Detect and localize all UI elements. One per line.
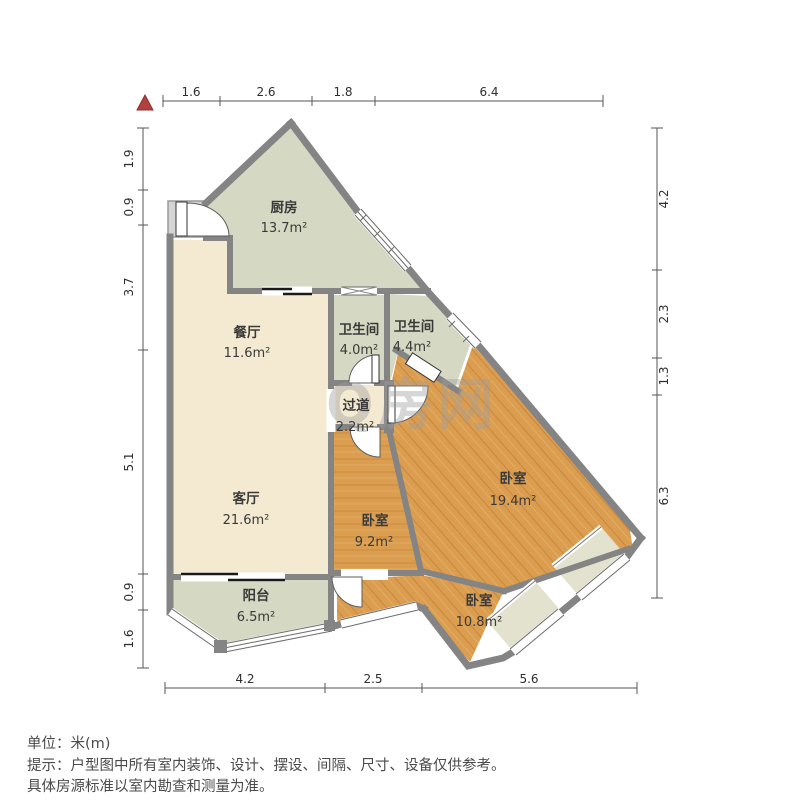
footer: 单位：米(m) 提示：户型图中所有室内装饰、设计、摆设、间隔、尺寸、设备仅供参考… [27,735,506,795]
dim-label-top-0: 1.6 [181,85,200,99]
dim-label-left-4: 0.9 [122,582,136,601]
dim-left [137,128,149,668]
dim-label-bottom-1: 2.5 [363,672,382,686]
room-hallway-label: 过道 [343,397,370,414]
room-bath2-label: 卫生间 [394,318,435,335]
room-kitchen-area: 13.7m² [261,221,308,236]
room-kitchen-floor [206,123,426,292]
dim-label-top-1: 2.6 [256,85,275,99]
room-balcony-area: 6.5m² [237,610,276,625]
room-hallway-area: 2.2m² [336,420,375,435]
floorplan-canvas: Q房网 厨房 13.7m² 餐厅 11.6m² 卫生间 4.0m² 卫生间 4.… [0,0,800,800]
room-bedroom-small-label: 卧室 [466,592,493,609]
room-living-area: 21.6m² [223,513,270,528]
balcony-sliding-door [181,574,285,580]
footer-unit-label: 单位：米(m) [27,735,110,752]
room-bath1-label: 卫生间 [339,321,380,338]
room-balcony-label: 阳台 [243,587,270,604]
north-indicator-icon [137,95,153,110]
room-bath2-area: 4.4m² [393,340,432,355]
room-bedroom-mid-label: 卧室 [362,512,389,529]
dim-label-left-0: 1.9 [122,149,136,168]
room-bedroom-small-area: 10.8m² [456,615,503,630]
room-bedroom-big-label: 卧室 [500,470,528,487]
dim-label-right-1: 2.3 [657,304,671,323]
dim-top [163,95,603,107]
room-kitchen-label: 厨房 [271,199,298,216]
dim-label-top-3: 6.4 [479,85,498,99]
room-bath1-area: 4.0m² [340,343,379,358]
room-dining-label: 餐厅 [233,324,261,341]
room-bedroom-big-area: 19.4m² [490,494,537,509]
dim-label-left-3: 5.1 [122,452,136,471]
footer-tip-line2: 具体房源标准以室内勘查和测量为准。 [27,778,274,795]
room-living-label: 客厅 [232,490,260,507]
room-dining-area: 11.6m² [224,346,271,361]
dim-label-right-0: 4.2 [657,189,671,208]
dim-label-bottom-0: 4.2 [235,672,254,686]
bedroom-small-door-arc [332,577,362,607]
dim-label-left-5: 1.6 [122,629,136,648]
dim-label-right-3: 6.3 [657,486,671,505]
kitchen-bath-window [341,287,377,295]
kitchen-sliding-door [262,289,312,294]
dim-label-bottom-2: 5.6 [519,672,538,686]
dim-label-left-2: 3.7 [122,277,136,296]
footer-tip-line1: 提示：户型图中所有室内装饰、设计、摆设、间隔、尺寸、设备仅供参考。 [27,757,506,774]
dim-label-left-1: 0.9 [122,197,136,216]
room-bedroom-mid-area: 9.2m² [355,535,394,550]
dim-label-right-2: 1.3 [657,366,671,385]
floorplan-page: Q房网 厨房 13.7m² 餐厅 11.6m² 卫生间 4.0m² 卫生间 4.… [0,0,800,800]
dim-label-top-2: 1.8 [333,85,352,99]
